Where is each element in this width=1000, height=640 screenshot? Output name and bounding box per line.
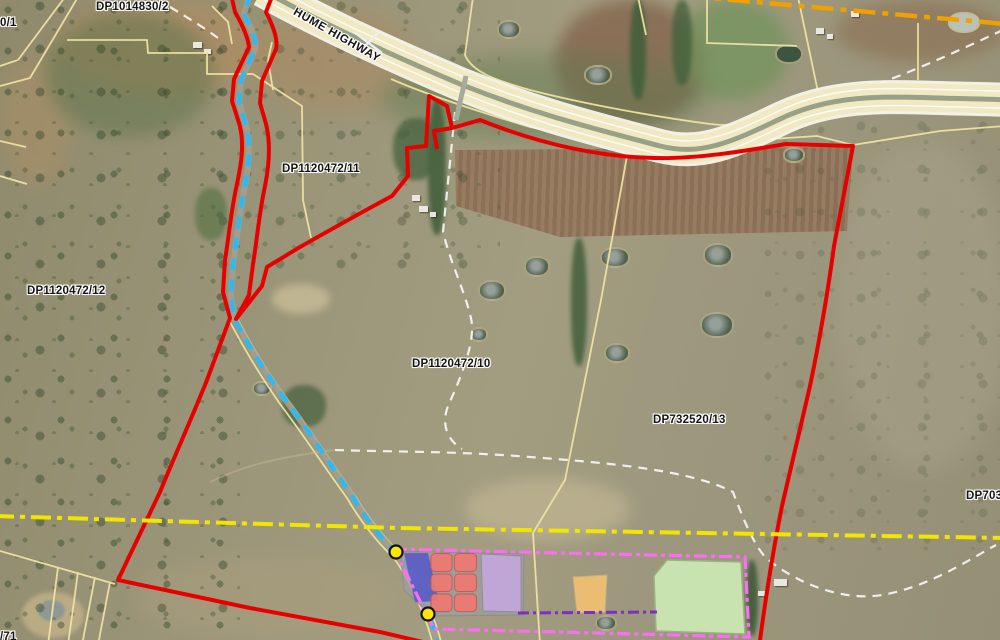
- parcel-label-71-partial: /71: [0, 631, 17, 640]
- parcel-label-dp1120472-10: DP1120472/10: [412, 358, 491, 370]
- parcel-label-0-1: 0/1: [0, 17, 17, 29]
- parcel-label-dp1120472-12: DP1120472/12: [27, 285, 106, 297]
- parcel-label-dp1120472-11: DP1120472/11: [282, 163, 360, 175]
- road-label-hume-highway: HUME HIGHWAY: [291, 6, 382, 65]
- map-labels: 0/1 DP1014830/2 HUME HIGHWAY DP1120472/1…: [0, 0, 1000, 640]
- parcel-label-dp1014830-2: DP1014830/2: [96, 1, 169, 13]
- parcel-label-dp732520-13: DP732520/13: [653, 414, 726, 426]
- map-viewport: 0/1 DP1014830/2 HUME HIGHWAY DP1120472/1…: [0, 0, 1000, 640]
- parcel-label-dp703-partial: DP7035: [966, 490, 1000, 502]
